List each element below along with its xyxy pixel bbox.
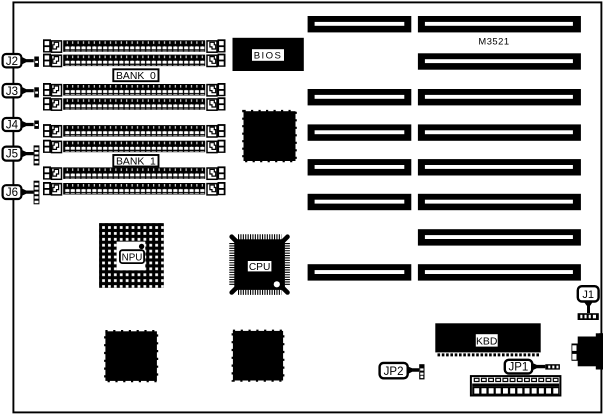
svg-text:BIOS: BIOS <box>254 51 283 62</box>
svg-text:KBD: KBD <box>476 336 497 347</box>
svg-text:BANK 0: BANK 0 <box>116 71 156 82</box>
svg-text:J6: J6 <box>6 187 18 199</box>
svg-text:CPU: CPU <box>249 262 271 273</box>
svg-text:JP2: JP2 <box>384 366 404 378</box>
svg-text:J2: J2 <box>6 56 18 68</box>
svg-text:JP1: JP1 <box>508 362 528 374</box>
svg-text:J3: J3 <box>6 86 18 98</box>
svg-text:NPU: NPU <box>122 252 143 263</box>
svg-text:M3521: M3521 <box>478 36 509 47</box>
svg-text:J1: J1 <box>582 289 594 301</box>
svg-text:BANK 1: BANK 1 <box>116 156 156 167</box>
svg-text:J4: J4 <box>6 120 19 132</box>
svg-text:J5: J5 <box>6 149 18 161</box>
